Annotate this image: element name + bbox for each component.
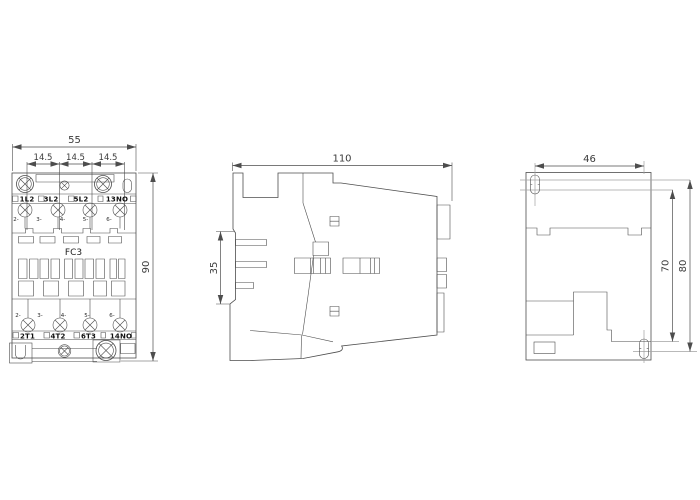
terminal-label: 14NO — [110, 333, 132, 341]
terminal-mark: 3- — [37, 313, 42, 319]
terminal-mark: 4- — [60, 217, 65, 223]
terminal-mark: 3- — [36, 217, 41, 223]
technical-drawing-page: 55 14.5 14.5 14.5 90 1L2 3L2 5L2 13NO 2T… — [0, 0, 700, 500]
contactor-dimension-drawing: 55 14.5 14.5 14.5 90 1L2 3L2 5L2 13NO 2T… — [0, 0, 700, 500]
dim-pitch-2-label: 14.5 — [66, 153, 85, 163]
terminal-mark: 2- — [15, 313, 20, 319]
terminal-label: 6T3 — [81, 333, 96, 341]
dim-hole-height-label: 70 — [661, 260, 672, 273]
terminal-label: 2T1 — [20, 333, 35, 341]
terminal-mark: 6- — [106, 217, 111, 223]
terminal-label: 1L2 — [20, 196, 35, 204]
dim-depth-label: 110 — [332, 154, 351, 165]
model-label: FC3 — [65, 248, 82, 258]
dim-hole-spacing-label: 46 — [583, 154, 596, 165]
dim-pitch-1-label: 14.5 — [34, 153, 53, 163]
terminal-label: 3L2 — [44, 196, 59, 204]
terminal-mark: 2- — [13, 217, 18, 223]
terminal-mark: 5- — [84, 313, 89, 319]
dim-width-label: 55 — [68, 135, 81, 146]
terminal-label: 5L2 — [74, 196, 89, 204]
terminal-label: 4T2 — [50, 333, 65, 341]
background — [0, 0, 700, 500]
terminal-mark: 5- — [83, 217, 88, 223]
terminal-mark: 4- — [61, 313, 66, 319]
dim-height-label: 90 — [141, 261, 152, 274]
dim-overall-height-label: 80 — [678, 260, 689, 273]
dim-rail-label: 35 — [209, 262, 220, 275]
dim-pitch-3-label: 14.5 — [99, 153, 118, 163]
terminal-label: 13NO — [106, 196, 128, 204]
terminal-mark: 6- — [109, 313, 114, 319]
